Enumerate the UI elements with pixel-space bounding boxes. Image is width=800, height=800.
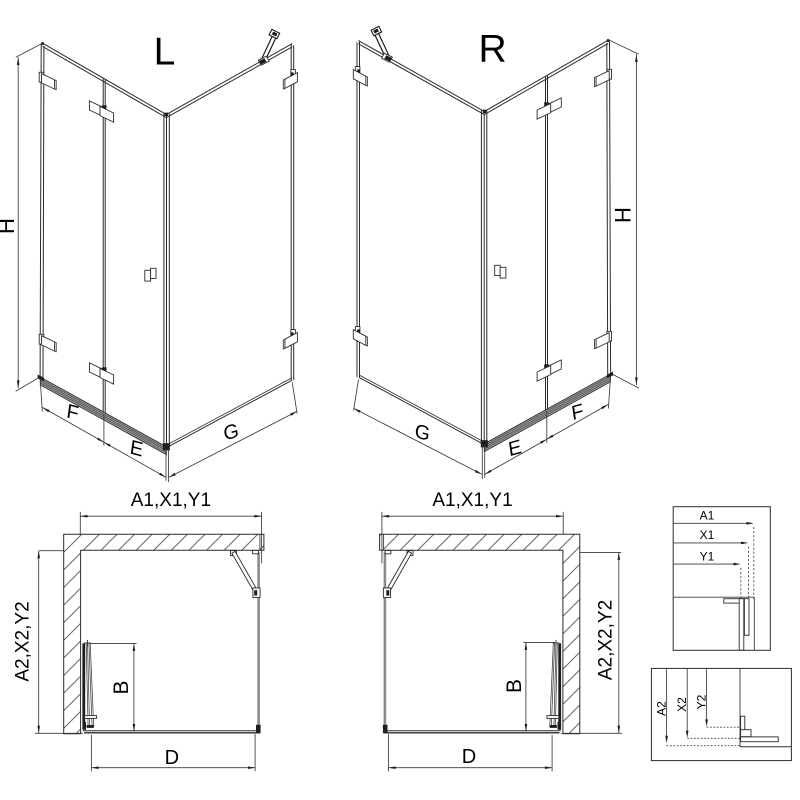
svg-text:A1,X1,Y1: A1,X1,Y1 — [131, 490, 211, 511]
svg-text:R: R — [479, 28, 507, 71]
svg-text:X1: X1 — [700, 528, 715, 542]
svg-text:G: G — [222, 420, 240, 446]
svg-text:A2,X2,Y2: A2,X2,Y2 — [596, 600, 617, 680]
svg-text:D: D — [165, 747, 179, 769]
svg-text:Y2: Y2 — [695, 694, 709, 709]
svg-text:H: H — [611, 207, 636, 223]
svg-text:B: B — [110, 680, 133, 694]
svg-text:L: L — [154, 31, 176, 74]
svg-text:Y1: Y1 — [700, 549, 715, 563]
svg-text:D: D — [462, 746, 476, 768]
svg-text:A1,X1,Y1: A1,X1,Y1 — [432, 490, 512, 511]
svg-text:B: B — [503, 679, 526, 693]
svg-text:A1: A1 — [700, 509, 715, 523]
svg-text:A2: A2 — [655, 701, 669, 716]
svg-text:E: E — [129, 436, 145, 461]
svg-text:E: E — [507, 436, 523, 461]
svg-text:F: F — [65, 400, 80, 425]
svg-text:X2: X2 — [675, 697, 689, 712]
svg-text:F: F — [570, 400, 585, 425]
svg-text:G: G — [413, 420, 431, 446]
svg-text:H: H — [0, 218, 19, 234]
svg-text:A2,X2,Y2: A2,X2,Y2 — [13, 601, 34, 681]
